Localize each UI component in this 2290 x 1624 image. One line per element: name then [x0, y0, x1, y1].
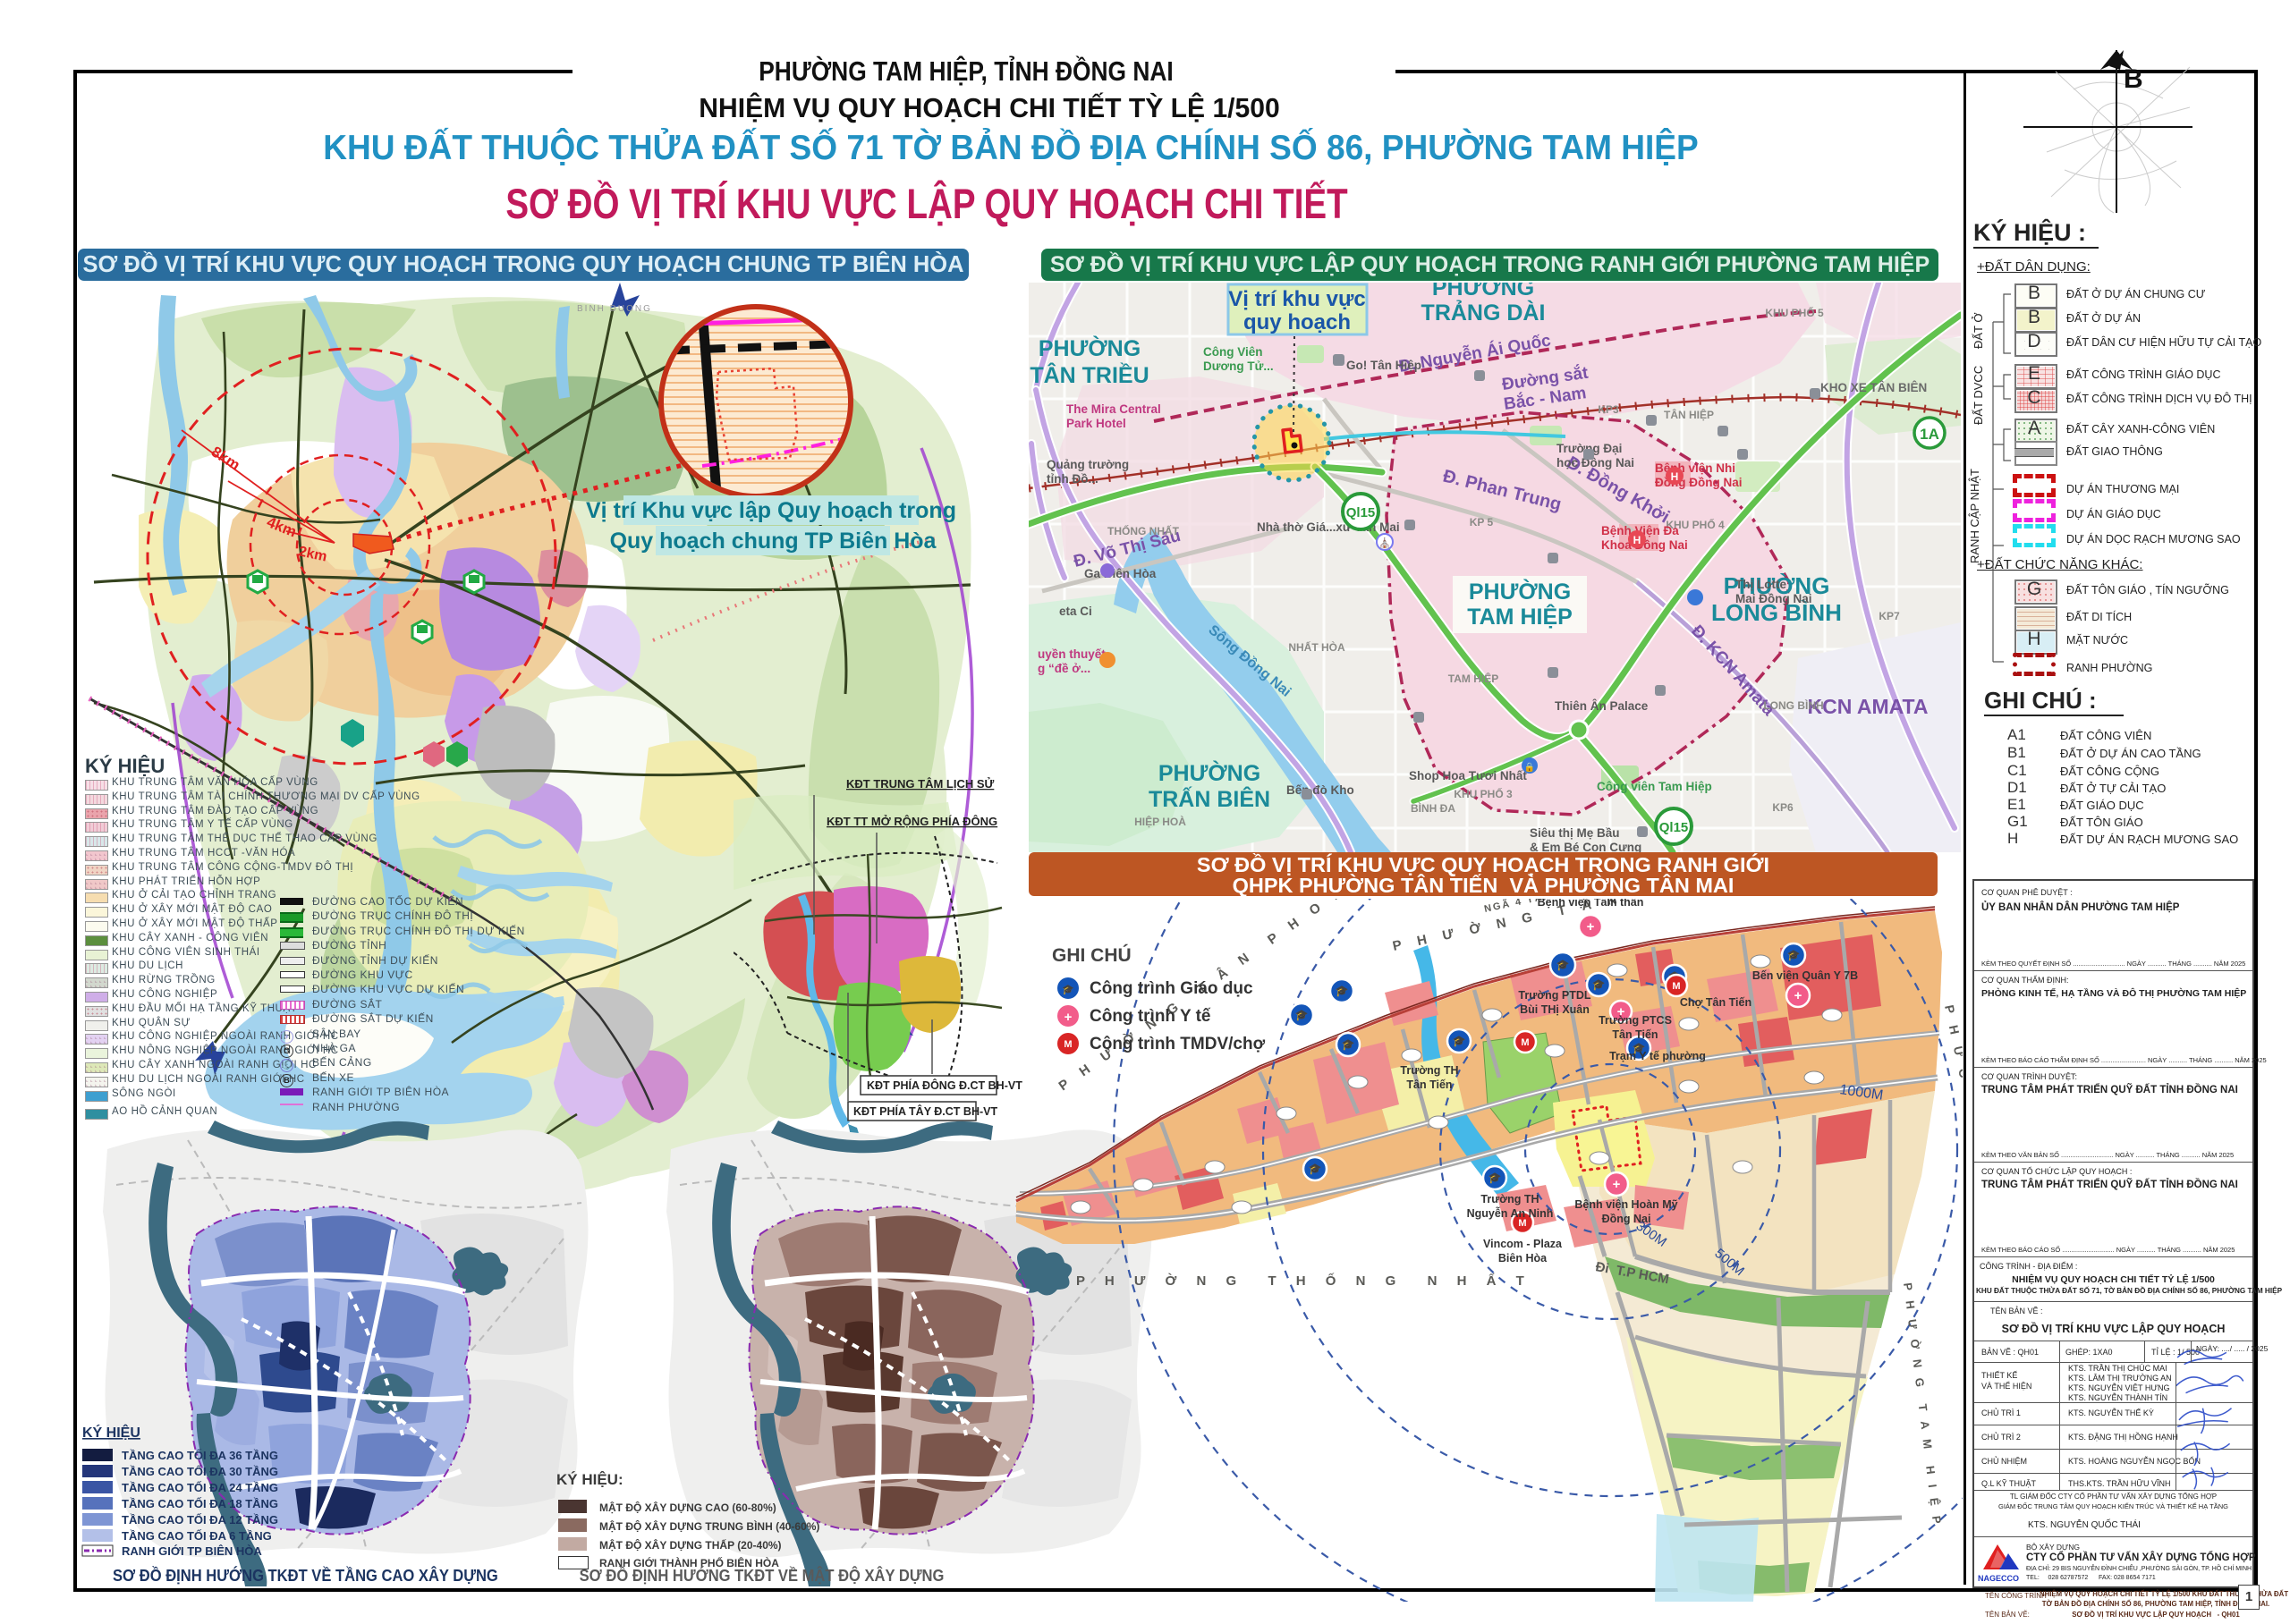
svg-text:PHƯỜNG: PHƯỜNG: [1158, 759, 1260, 786]
svg-text:RANH GIỚI TP BIÊN HÒA: RANH GIỚI TP BIÊN HÒA: [122, 1544, 262, 1558]
svg-text:KĐT TRUNG TÂM LỊCH SỬ: KĐT TRUNG TÂM LỊCH SỬ: [846, 777, 995, 791]
svg-text:PHƯỜNG: PHƯỜNG: [1039, 334, 1141, 361]
svg-text:Dương Tử...: Dương Tử...: [1203, 359, 1274, 373]
svg-text:Đồng Nai: Đồng Nai: [1602, 1213, 1651, 1225]
svg-text:Bệnh viện Hoàn Mỹ: Bệnh viện Hoàn Mỹ: [1574, 1198, 1677, 1211]
svg-text:+: +: [1794, 988, 1802, 1003]
svg-text:🎓: 🎓: [1309, 1163, 1322, 1175]
svg-text:& Em Bé Con Cưng: & Em Bé Con Cưng: [1530, 841, 1641, 852]
svg-text:Bệnh viện Tâm thần: Bệnh viện Tâm thần: [1538, 899, 1644, 909]
svg-text:TRẤN BIÊN: TRẤN BIÊN: [1149, 785, 1270, 812]
svg-text:TẦNG CAO TỐI ĐA 30 TẦNG: TẦNG CAO TỐI ĐA 30 TẦNG: [122, 1465, 278, 1478]
svg-text:Ql15: Ql15: [1346, 505, 1376, 520]
svg-text:Trường TH: Trường TH: [1480, 1193, 1539, 1205]
svg-text:+: +: [1587, 919, 1595, 935]
svg-text:H: H: [1671, 470, 1679, 483]
svg-text:KHU PHỐ 5: KHU PHỐ 5: [1765, 306, 1824, 319]
svg-text:KĐT PHÍA ĐÔNG Đ.CT BH-VT: KĐT PHÍA ĐÔNG Đ.CT BH-VT: [867, 1078, 1022, 1092]
svg-text:PHƯỜNG: PHƯỜNG: [1469, 578, 1571, 605]
svg-text:Công trình Y tế: Công trình Y tế: [1090, 1007, 1211, 1026]
svg-text:TAM HIỆP: TAM HIỆP: [1467, 603, 1573, 630]
svg-text:Trường PTDL: Trường PTDL: [1518, 989, 1590, 1002]
svg-text:Biên Hòa: Biên Hòa: [1498, 1252, 1548, 1265]
svg-text:PHƯỜNG: PHƯỜNG: [1432, 283, 1534, 300]
svg-text:KP7: KP7: [1879, 610, 1900, 622]
svg-text:+: +: [1064, 1010, 1073, 1025]
svg-text:g “đề ở...: g “đề ở...: [1038, 662, 1090, 675]
svg-text:Trường PTCS: Trường PTCS: [1599, 1014, 1672, 1027]
svg-text:🎓: 🎓: [1336, 985, 1349, 997]
svg-text:🎓: 🎓: [1592, 978, 1606, 991]
svg-text:KĐT TT MỞ RỘNG PHÍA ĐÔNG: KĐT TT MỞ RỘNG PHÍA ĐÔNG: [827, 815, 997, 828]
svg-text:KHU PHỐ 3: KHU PHỐ 3: [1454, 787, 1513, 800]
svg-text:TAM HIỆP: TAM HIỆP: [1448, 672, 1498, 685]
svg-text:eta Ci: eta Ci: [1059, 605, 1092, 618]
svg-text:TẦNG CAO TỐI ĐA 18 TẦNG: TẦNG CAO TỐI ĐA 18 TẦNG: [122, 1497, 278, 1510]
svg-text:HIỆP HOÀ: HIỆP HOÀ: [1134, 815, 1186, 828]
svg-text:BINH DUONG: BINH DUONG: [577, 304, 652, 314]
svg-text:Park Hotel: Park Hotel: [1066, 417, 1126, 430]
svg-text:H: H: [1633, 534, 1641, 546]
svg-text:⛪: ⛪: [1378, 537, 1391, 549]
svg-text:TẦNG CAO TỐI ĐA 36 TẦNG: TẦNG CAO TỐI ĐA 36 TẦNG: [122, 1449, 278, 1462]
svg-text:🎓: 🎓: [1062, 985, 1074, 995]
svg-text:The Mira Central: The Mira Central: [1066, 402, 1161, 416]
svg-text:Quy hoạch chung TP Biên Hòa: Quy hoạch chung TP Biên Hòa: [610, 529, 937, 554]
svg-text:Nhà thờ Giá...xứ Tân Mai: Nhà thờ Giá...xứ Tân Mai: [1257, 520, 1400, 534]
svg-text:TẦNG CAO TỐI ĐA 6 TẦNG: TẦNG CAO TỐI ĐA 6 TẦNG: [122, 1529, 272, 1543]
svg-text:Siêu thị Mẹ Bầu: Siêu thị Mẹ Bầu: [1530, 826, 1620, 840]
svg-text:TÂN HIỆP: TÂN HIỆP: [1664, 408, 1714, 421]
svg-text:KP 5: KP 5: [1470, 516, 1494, 529]
svg-text:🎓: 🎓: [1488, 1171, 1502, 1184]
svg-text:Thiên Ân Palace: Thiên Ân Palace: [1555, 699, 1649, 713]
svg-text:M: M: [1672, 981, 1680, 992]
svg-text:Bến viện Quân Y 7B: Bến viện Quân Y 7B: [1752, 969, 1858, 982]
svg-text:KP3: KP3: [1598, 403, 1619, 416]
svg-text:Bùi THị Xuân: Bùi THị Xuân: [1520, 1003, 1590, 1016]
svg-text:Tân Tiến: Tân Tiến: [1406, 1078, 1452, 1091]
svg-text:Quảng trường: Quảng trường: [1047, 458, 1129, 471]
svg-text:BÌNH ĐA: BÌNH ĐA: [1411, 801, 1455, 815]
svg-text:M: M: [1064, 1039, 1072, 1050]
svg-text:TRẢNG DÀI: TRẢNG DÀI: [1421, 299, 1546, 326]
svg-text:THỐNG NHẤT: THỐNG NHẤT: [1107, 524, 1180, 537]
svg-text:học Đồng Nai: học Đồng Nai: [1556, 456, 1634, 469]
svg-text:Tân Tiến: Tân Tiến: [1612, 1028, 1658, 1041]
svg-text:uyền thuyết: uyền thuyết: [1038, 647, 1106, 661]
svg-text:Shop Hoa Tươi Nhất: Shop Hoa Tươi Nhất: [1409, 769, 1527, 782]
svg-text:NHẤT HÒA: NHẤT HÒA: [1288, 640, 1345, 654]
svg-text:🎓: 🎓: [1342, 1038, 1355, 1051]
svg-text:P H Ư Ờ N G T H Ố N G N H Ấ: P H Ư Ờ N G T H Ố N G N H Ấ T: [1076, 1273, 1532, 1289]
svg-text:Thị Lotte: Thị Lotte: [1735, 578, 1786, 591]
svg-text:Công trình TMDV/chợ: Công trình TMDV/chợ: [1090, 1035, 1266, 1053]
svg-text:1A: 1A: [1920, 426, 1939, 443]
svg-text:🎓: 🎓: [1556, 959, 1570, 971]
svg-text:TÂN TRIỀU: TÂN TRIỀU: [1030, 361, 1149, 388]
svg-text:Bến đò Kho: Bến đò Kho: [1286, 783, 1354, 797]
svg-text:Vị trí khu vực: Vị trí khu vực: [1228, 287, 1365, 311]
svg-text:🔒: 🔒: [1524, 762, 1535, 773]
svg-text:TẦNG CAO TỐI ĐA 24 TẦNG: TẦNG CAO TỐI ĐA 24 TẦNG: [122, 1481, 278, 1494]
svg-text:P H Ư Ờ N G T A M H I Ệ P: P H Ư Ờ N G T A M H I Ệ P: [1901, 1282, 1944, 1528]
svg-text:Công viên Tam Hiệp: Công viên Tam Hiệp: [1597, 780, 1712, 793]
svg-text:KHO XE TÂN BIÊN: KHO XE TÂN BIÊN: [1820, 381, 1927, 394]
svg-text:Vị trí Khu vực lập Quy hoạch t: Vị trí Khu vực lập Quy hoạch trong: [586, 498, 956, 523]
svg-text:Mai Đồng Nai: Mai Đồng Nai: [1735, 592, 1812, 605]
svg-text:Công trình Giáo dục: Công trình Giáo dục: [1090, 979, 1253, 998]
svg-text:Nguyễn An Ninh: Nguyễn An Ninh: [1467, 1206, 1554, 1220]
svg-text:KP6: KP6: [1772, 801, 1794, 814]
svg-text:Vincom - Plaza: Vincom - Plaza: [1483, 1238, 1563, 1250]
svg-text:🎓: 🎓: [1787, 949, 1801, 961]
svg-text:Ql15: Ql15: [1659, 820, 1689, 835]
svg-text:Ga Biên Hòa: Ga Biên Hòa: [1084, 567, 1157, 580]
svg-text:KCN AMATA: KCN AMATA: [1808, 695, 1929, 718]
svg-text:LONG BÌNH: LONG BÌNH: [1763, 698, 1823, 712]
svg-text:Go! Tân Hiệp: Go! Tân Hiệp: [1346, 359, 1421, 372]
svg-text:GHI CHÚ: GHI CHÚ: [1052, 944, 1132, 966]
svg-text:Chợ Tân Tiến: Chợ Tân Tiến: [1680, 996, 1751, 1009]
svg-text:tỉnh Đồ...: tỉnh Đồ...: [1047, 472, 1098, 486]
svg-text:M: M: [1521, 1037, 1529, 1048]
svg-text:TẦNG CAO TỐI ĐA 12 TẦNG: TẦNG CAO TỐI ĐA 12 TẦNG: [122, 1513, 278, 1527]
svg-text:🎓: 🎓: [1295, 1009, 1309, 1021]
svg-text:Trạm Y tế phường: Trạm Y tế phường: [1609, 1050, 1706, 1062]
svg-text:Trường TH: Trường TH: [1400, 1064, 1458, 1077]
svg-text:KÝ HIỆU: KÝ HIỆU: [82, 1424, 140, 1441]
svg-text:quy hoạch: quy hoạch: [1243, 310, 1351, 334]
svg-text:+: +: [1613, 1177, 1621, 1192]
svg-text:🎓: 🎓: [1453, 1035, 1466, 1047]
svg-text:Công Viên: Công Viên: [1203, 345, 1263, 359]
